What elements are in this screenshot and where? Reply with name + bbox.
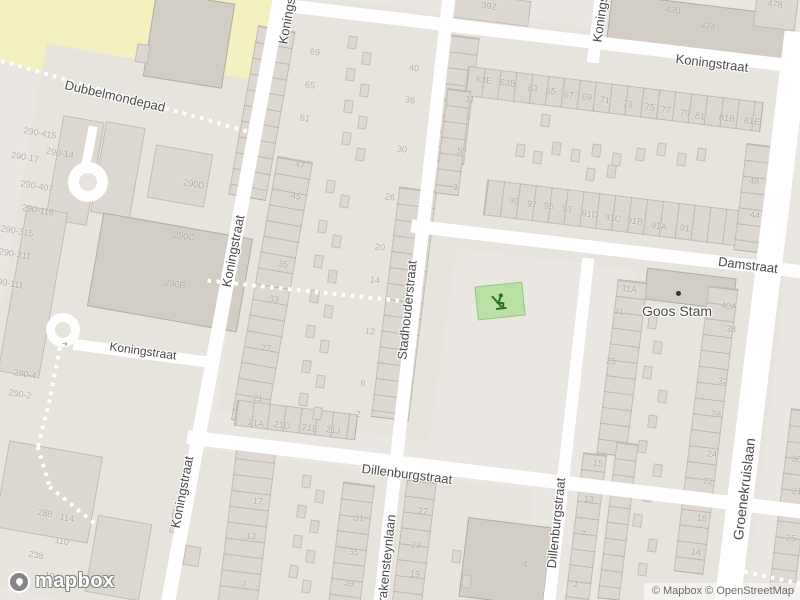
small-house (637, 439, 648, 453)
house-number: 71 (599, 94, 610, 105)
house-number: 24 (706, 448, 717, 459)
small-house (585, 167, 596, 181)
house-number: 95 (543, 200, 554, 211)
small-house (359, 83, 370, 97)
house-number: 35 (277, 258, 288, 269)
building (147, 144, 213, 207)
small-house (606, 164, 617, 178)
small-house (451, 549, 462, 563)
small-house (323, 304, 334, 318)
building (0, 440, 102, 543)
house-number: 11 (465, 93, 475, 104)
attribution-bar[interactable]: © Mapbox © OpenStreetMap (644, 583, 800, 600)
small-house (461, 574, 472, 588)
house-number: 25 (605, 355, 616, 366)
house-number: 14 (369, 274, 380, 285)
house-number: 67 (563, 89, 574, 100)
small-house (637, 562, 648, 576)
house-number: 40A (720, 300, 737, 312)
house-number: 91C (604, 212, 622, 224)
mapbox-pin-icon (8, 571, 30, 593)
small-house (591, 143, 602, 157)
house-number: 21 (791, 485, 800, 496)
house-number: 15 (592, 457, 603, 468)
house-number: 63B (499, 77, 516, 89)
small-house (357, 115, 368, 129)
house-number: 97 (526, 198, 537, 209)
small-house (305, 324, 316, 338)
house-number: 69 (309, 46, 320, 57)
playground-area (474, 282, 525, 321)
small-house (296, 504, 307, 518)
small-house (345, 67, 356, 81)
house-number: 81E (743, 115, 760, 127)
house-number: 99 (508, 195, 519, 206)
small-house (288, 564, 299, 578)
house-number: 21A (247, 417, 264, 429)
small-house (611, 152, 622, 166)
house-number: 35 (348, 546, 359, 557)
small-house (347, 35, 358, 49)
small-house (301, 579, 312, 593)
house-number: 63E (475, 74, 492, 86)
small-house (570, 148, 581, 162)
house-number: 44 (749, 209, 760, 220)
poi-label: Goos Stam (642, 303, 712, 319)
small-house (343, 99, 354, 113)
small-house (312, 406, 323, 420)
small-house (314, 489, 325, 503)
small-house (676, 152, 687, 166)
street-label: Dillenburgstraat (544, 477, 568, 569)
house-number: 25 (785, 532, 796, 543)
house-number: 17 (252, 495, 263, 506)
small-house (532, 150, 543, 164)
house-number: 65 (304, 79, 315, 90)
house-number: 22 (702, 475, 713, 486)
house-number: 14 (690, 546, 701, 557)
row-houses (769, 408, 800, 592)
playground-icon (489, 291, 511, 311)
poi-dot (676, 291, 681, 296)
house-number: 93 (561, 203, 572, 214)
house-number: 48 (748, 175, 759, 186)
small-house (540, 113, 551, 127)
mapbox-logo[interactable]: mapbox (8, 570, 115, 593)
house-number: 21D (273, 419, 291, 431)
small-house (657, 389, 668, 403)
roundabout (68, 162, 108, 202)
house-number: 63 (527, 82, 538, 93)
house-number: 77 (660, 104, 671, 115)
roundabout-center (55, 322, 71, 338)
house-number: 65 (545, 85, 556, 96)
house-number: 19 (409, 568, 420, 579)
house-number: 38 (725, 323, 736, 334)
house-number: 75 (644, 101, 655, 112)
small-house (647, 414, 658, 428)
small-house (315, 374, 326, 388)
house-number: 81B (718, 112, 735, 124)
small-house (313, 254, 324, 268)
small-house (301, 359, 312, 373)
house-number: 81 (694, 110, 705, 121)
house-number: 45 (290, 190, 301, 201)
house-number: 40 (408, 62, 419, 73)
house-number: 91 (679, 222, 690, 233)
house-number: 23 (410, 539, 421, 550)
house-number: 30 (791, 453, 800, 464)
small-house (632, 513, 643, 527)
house-number: 36 (404, 94, 415, 105)
roundabout-center (79, 173, 97, 191)
house-number: 18 (696, 512, 707, 523)
small-house (325, 179, 336, 193)
small-house (339, 194, 350, 208)
small-house (327, 269, 338, 283)
house-number: 31 (613, 305, 624, 316)
house-number: 26 (384, 191, 395, 202)
house-number: 30 (396, 143, 407, 154)
small-house (319, 339, 330, 353)
small-house (301, 474, 312, 488)
house-number: 39 (343, 577, 354, 588)
house-number: 31 (353, 512, 364, 523)
small-house (292, 534, 303, 548)
house-number: 32 (717, 375, 728, 386)
house-number: 13 (245, 530, 256, 541)
house-number: 392 (481, 0, 497, 12)
oneway-arrow-icon: ➜ (61, 340, 68, 349)
building (134, 43, 150, 64)
small-house (298, 392, 309, 406)
small-house (309, 519, 320, 533)
building (143, 0, 235, 89)
small-house (656, 142, 667, 156)
house-number: 13 (583, 493, 594, 504)
house-number: 69 (581, 91, 592, 102)
small-house (341, 131, 352, 145)
house-number: 28 (710, 408, 721, 419)
house-number: 21E (301, 422, 318, 434)
house-number: 31A (620, 283, 637, 295)
small-house (317, 219, 328, 233)
small-house (642, 365, 653, 379)
small-house (696, 147, 707, 161)
house-number: 61 (299, 112, 310, 123)
small-house (305, 549, 316, 563)
house-number: 478 (767, 0, 783, 10)
house-number: 27 (417, 505, 428, 516)
building (458, 517, 552, 600)
map-canvas[interactable]: Goos Stam mapbox © Mapbox © OpenStreetMa… (0, 0, 800, 600)
house-number: 91D (581, 208, 599, 220)
small-house (331, 234, 342, 248)
building (182, 545, 201, 567)
house-number: 73 (622, 98, 633, 109)
house-number: 21 (252, 392, 263, 403)
house-number: 27 (260, 342, 271, 353)
small-house (515, 143, 526, 157)
small-house (361, 51, 372, 65)
small-house (652, 340, 663, 354)
house-number: 20 (374, 241, 385, 252)
house-number: 474 (700, 20, 716, 32)
house-number: 21J (325, 424, 341, 436)
house-number: 79 (679, 107, 690, 118)
house-number: 91A (650, 220, 667, 232)
house-number: 47 (294, 159, 305, 170)
small-house (647, 538, 658, 552)
house-number: 12 (364, 325, 375, 336)
small-house (652, 463, 663, 477)
small-house (635, 147, 646, 161)
house-number: 33 (268, 293, 279, 304)
house-number: 91B (626, 215, 643, 227)
house-number: 420 (665, 4, 681, 16)
small-house (355, 147, 366, 161)
small-house (551, 141, 562, 155)
mapbox-wordmark: mapbox (35, 570, 115, 593)
